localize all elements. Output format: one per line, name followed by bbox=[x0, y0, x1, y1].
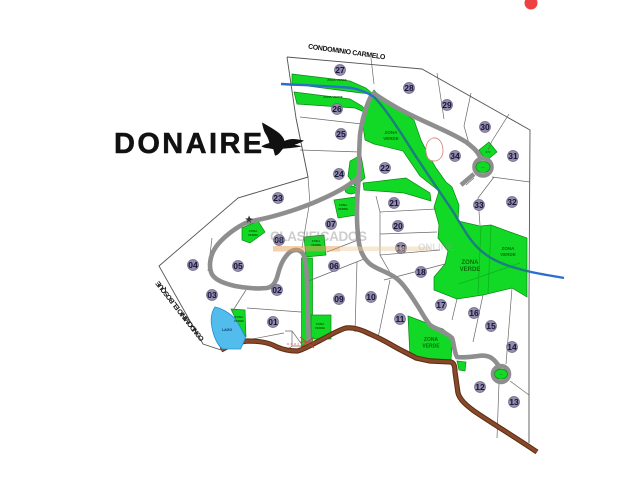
svg-text:VERDE: VERDE bbox=[315, 326, 325, 330]
svg-text:ZONA VERDE: ZONA VERDE bbox=[323, 95, 343, 99]
svg-text:21: 21 bbox=[389, 198, 399, 208]
svg-text:ZONA: ZONA bbox=[462, 260, 480, 266]
svg-text:17: 17 bbox=[436, 300, 446, 310]
svg-text:LAGO: LAGO bbox=[222, 328, 232, 332]
svg-text:ZONA: ZONA bbox=[502, 246, 515, 251]
svg-text:06: 06 bbox=[329, 261, 339, 271]
svg-text:28: 28 bbox=[404, 83, 414, 93]
svg-text:VERDE: VERDE bbox=[383, 136, 399, 141]
svg-text:31: 31 bbox=[508, 151, 518, 161]
svg-text:VERDE: VERDE bbox=[248, 233, 258, 237]
svg-text:04: 04 bbox=[188, 260, 198, 270]
svg-text:01: 01 bbox=[268, 317, 278, 327]
svg-text:ONLINE: ONLINE bbox=[418, 242, 454, 253]
svg-text:ZONA: ZONA bbox=[385, 130, 398, 135]
svg-text:VERDE: VERDE bbox=[460, 267, 481, 273]
svg-text:20: 20 bbox=[393, 221, 403, 231]
svg-text:23: 23 bbox=[273, 193, 283, 203]
svg-text:VERDE: VERDE bbox=[500, 252, 516, 257]
svg-text:12: 12 bbox=[475, 382, 485, 392]
svg-text:—: — bbox=[482, 165, 485, 169]
svg-text:26: 26 bbox=[332, 104, 342, 114]
svg-text:18: 18 bbox=[416, 267, 426, 277]
svg-text:VERDE: VERDE bbox=[338, 207, 348, 211]
svg-text:CLASIFICADOS: CLASIFICADOS bbox=[270, 229, 367, 244]
svg-text:05: 05 bbox=[233, 261, 243, 271]
svg-text:07: 07 bbox=[326, 219, 336, 229]
svg-text:33: 33 bbox=[474, 200, 484, 210]
svg-text:ZONA: ZONA bbox=[424, 337, 439, 343]
svg-text:30: 30 bbox=[480, 122, 490, 132]
svg-text:16: 16 bbox=[469, 308, 479, 318]
svg-text:02: 02 bbox=[272, 285, 282, 295]
svg-text:13: 13 bbox=[509, 397, 519, 407]
svg-text:25: 25 bbox=[336, 129, 346, 139]
svg-text:29: 29 bbox=[442, 100, 452, 110]
svg-text:VERDE: VERDE bbox=[234, 319, 244, 323]
svg-text:34: 34 bbox=[450, 151, 460, 161]
svg-text:09: 09 bbox=[334, 294, 344, 304]
svg-text:Z.V: Z.V bbox=[486, 150, 491, 154]
svg-text:VERDE: VERDE bbox=[422, 344, 440, 350]
svg-text:10: 10 bbox=[366, 292, 376, 302]
svg-text:03: 03 bbox=[207, 290, 217, 300]
svg-text:ZONA VERDE: ZONA VERDE bbox=[327, 78, 347, 82]
svg-text:27: 27 bbox=[335, 65, 345, 75]
svg-text:24: 24 bbox=[334, 169, 344, 179]
svg-text:—: — bbox=[500, 372, 503, 376]
svg-text:32: 32 bbox=[507, 197, 517, 207]
svg-text:11: 11 bbox=[396, 314, 405, 324]
svg-text:22: 22 bbox=[380, 163, 390, 173]
svg-text:15: 15 bbox=[486, 321, 496, 331]
svg-text:DONAIRE: DONAIRE bbox=[114, 128, 265, 160]
svg-text:14: 14 bbox=[507, 342, 517, 352]
